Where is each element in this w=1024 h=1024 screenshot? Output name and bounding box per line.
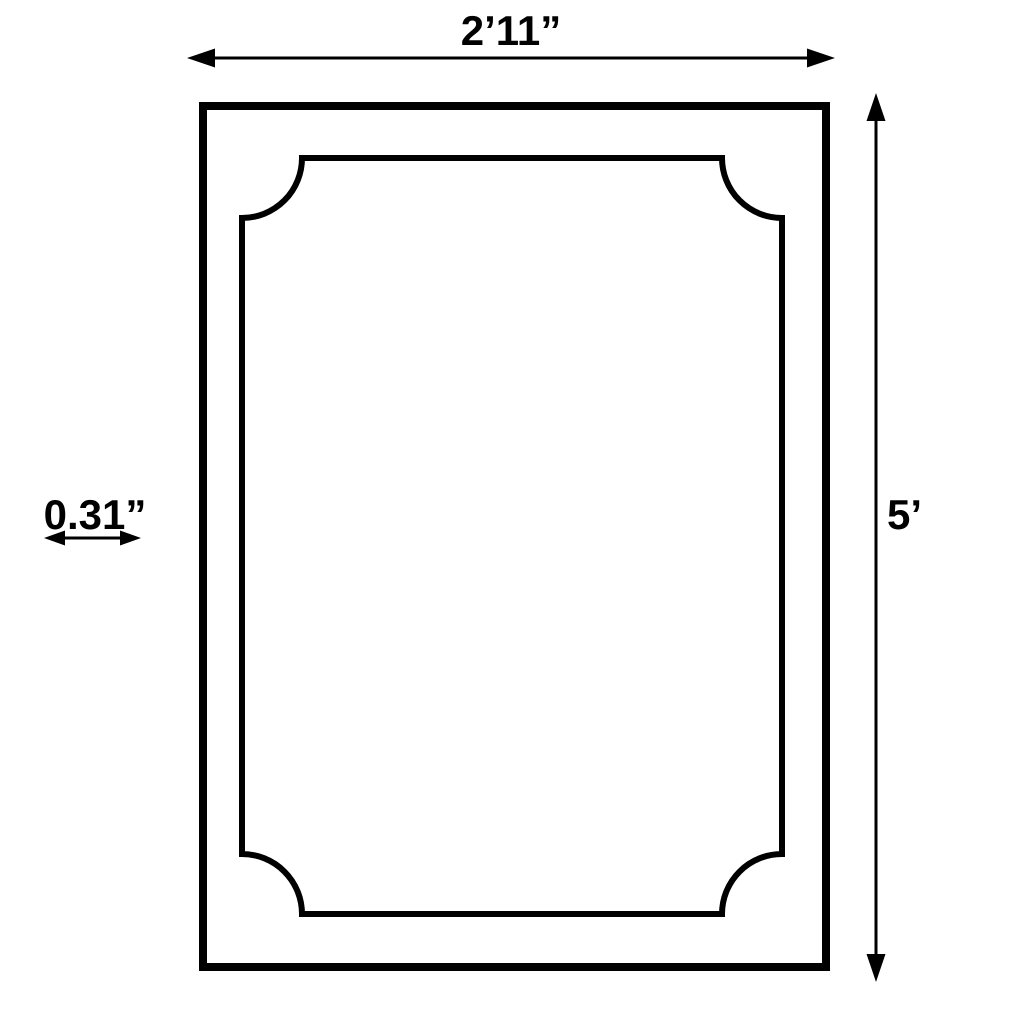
width-dimension-label: 2’11” bbox=[411, 10, 611, 52]
height-dimension-arrow bbox=[867, 93, 886, 982]
arrow-right-icon bbox=[807, 49, 835, 68]
panel-dimension-diagram: 2’11” 5’ 0.31” bbox=[0, 0, 1024, 1024]
outer-frame-outline bbox=[203, 106, 826, 967]
molding-width-dimension-label: 0.31” bbox=[15, 494, 175, 536]
arrow-down-icon bbox=[867, 954, 886, 982]
arrow-left-icon bbox=[187, 49, 215, 68]
height-dimension-label: 5’ bbox=[887, 494, 922, 536]
arrow-up-icon bbox=[867, 93, 886, 121]
